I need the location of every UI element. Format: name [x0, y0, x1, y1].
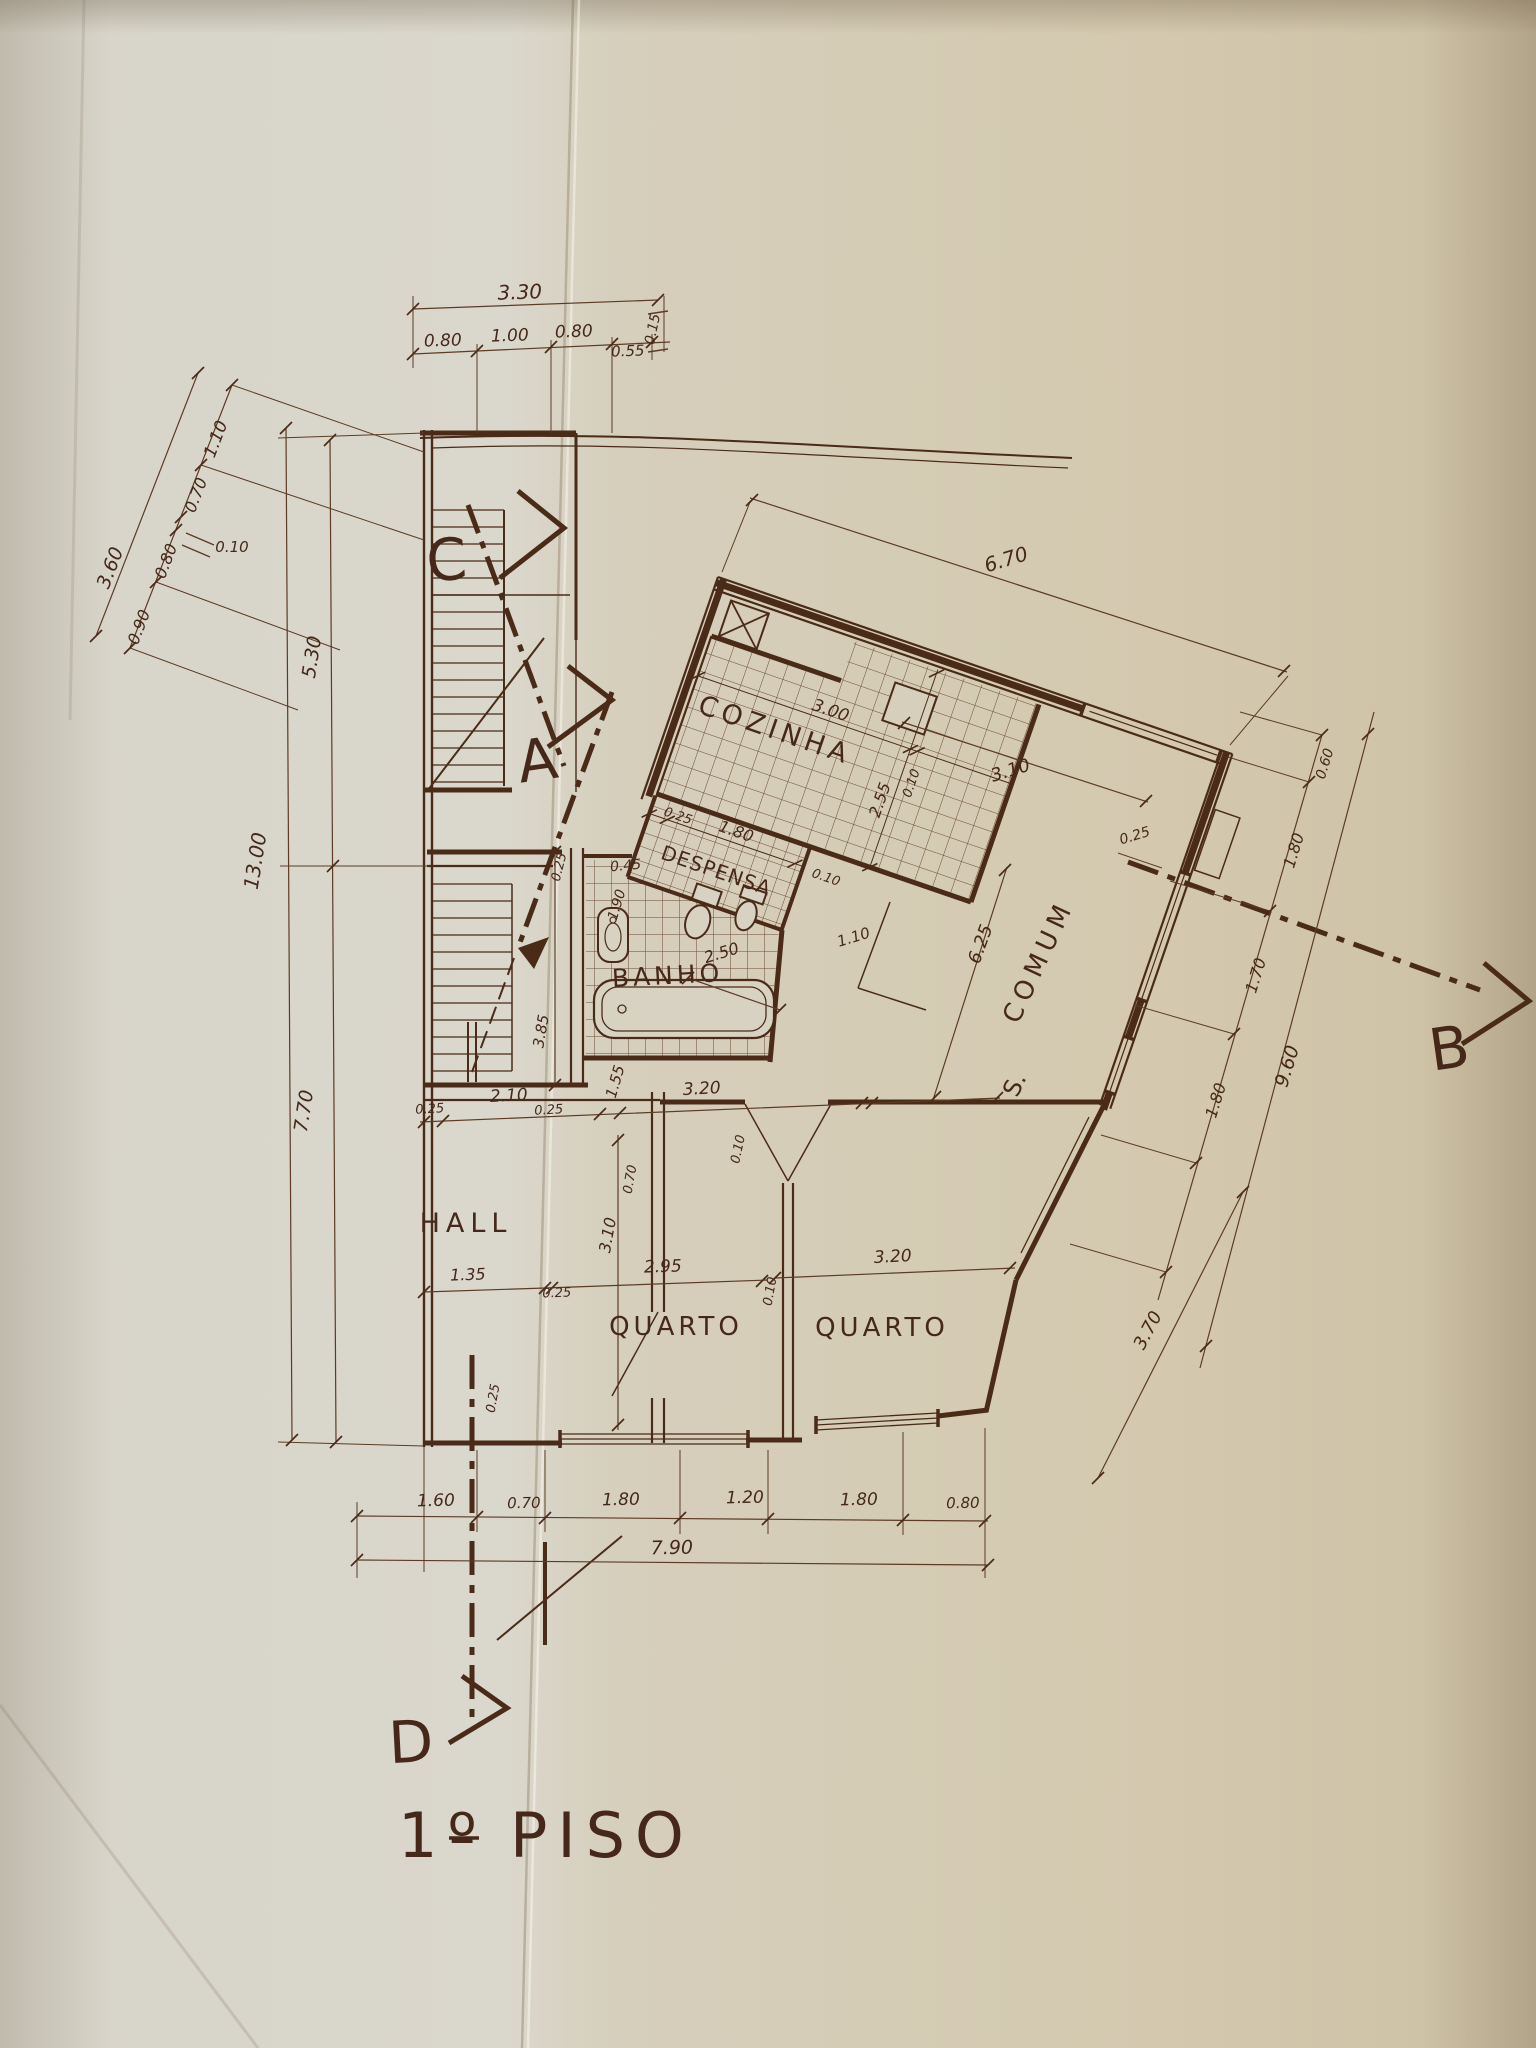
- room-label-quarto-right: QUARTO: [815, 1313, 949, 1343]
- dim-q1-w: 2.95: [644, 1256, 683, 1277]
- dim-bot-seg2: 0.70: [507, 1494, 541, 1513]
- dim-bot-seg5: 1.80: [840, 1490, 878, 1511]
- dim-hall-low: 1.35: [450, 1264, 486, 1284]
- dim-bot-seg4: 1.20: [726, 1488, 764, 1509]
- dim-hall-w: 2.10: [489, 1085, 528, 1107]
- dim-bot-seg1: 1.60: [417, 1491, 455, 1512]
- dim-mid-span: 3.20: [682, 1078, 721, 1100]
- drawing-title: 1º PISO: [398, 1799, 694, 1872]
- dim-bot-total: 7.90: [651, 1537, 694, 1560]
- room-label-quarto-left: QUARTO: [609, 1312, 743, 1342]
- dim-top-seg4: 0.55: [611, 341, 645, 360]
- dim-q2-w: 3.20: [873, 1246, 912, 1268]
- floor-plan-drawing: COZINHA DESPENSA 3.00 2.55 0.10 0.10 0.2…: [0, 0, 1536, 2048]
- section-letter-c: C: [424, 525, 469, 596]
- room-label-hall: HALL: [420, 1208, 513, 1239]
- title-word: PISO: [510, 1799, 694, 1872]
- dim-bot-seg6: 0.80: [946, 1494, 980, 1513]
- dim-mid-wall2: 0.25: [534, 1102, 564, 1118]
- scanned-blueprint-page: COZINHA DESPENSA 3.00 2.55 0.10 0.10 0.2…: [0, 0, 1536, 2048]
- dim-top-seg1: 0.80: [424, 330, 463, 351]
- dim-top-overall: 3.30: [497, 279, 542, 305]
- title-number: 1º: [398, 1799, 487, 1872]
- dim-bath-nook: 0.45: [609, 857, 642, 876]
- dim-mid-wall1: 0.25: [415, 1101, 445, 1117]
- dim-nw-callout: 0.10: [215, 538, 248, 556]
- dim-q-wall-low: 0.25: [542, 1286, 571, 1302]
- section-letter-d: D: [387, 1707, 435, 1777]
- dim-bot-seg3: 1.80: [602, 1490, 640, 1511]
- dim-top-seg2: 1.00: [491, 325, 530, 346]
- dim-top-seg3: 0.80: [555, 321, 594, 342]
